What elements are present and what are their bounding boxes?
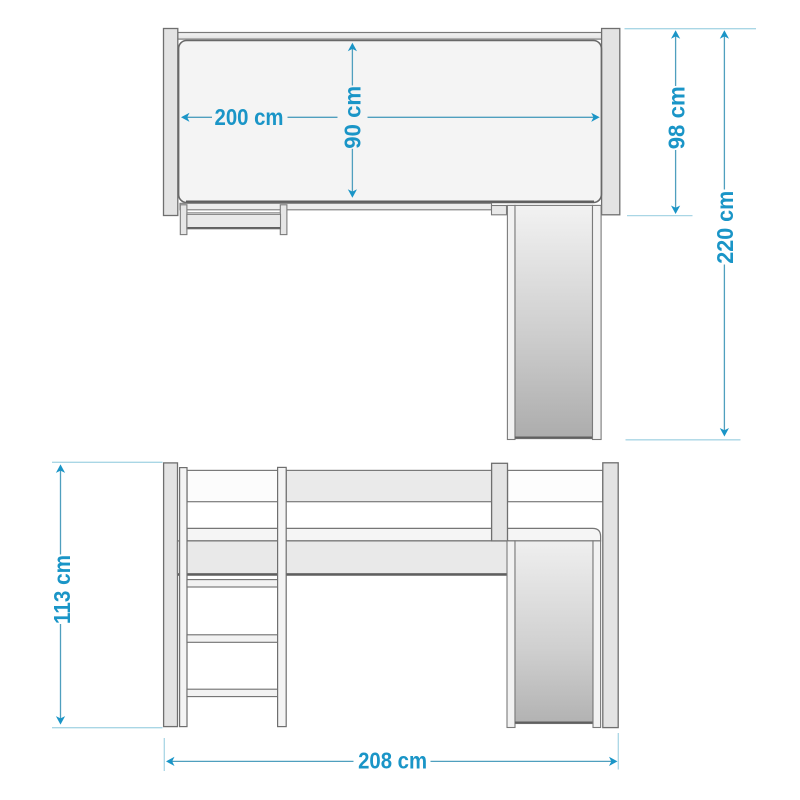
svg-text:90 cm: 90 cm <box>339 86 365 149</box>
svg-text:208 cm: 208 cm <box>358 747 427 773</box>
svg-text:220 cm: 220 cm <box>712 191 738 264</box>
svg-text:98 cm: 98 cm <box>664 86 690 149</box>
svg-text:113 cm: 113 cm <box>49 555 75 624</box>
svg-text:200 cm: 200 cm <box>215 104 284 130</box>
